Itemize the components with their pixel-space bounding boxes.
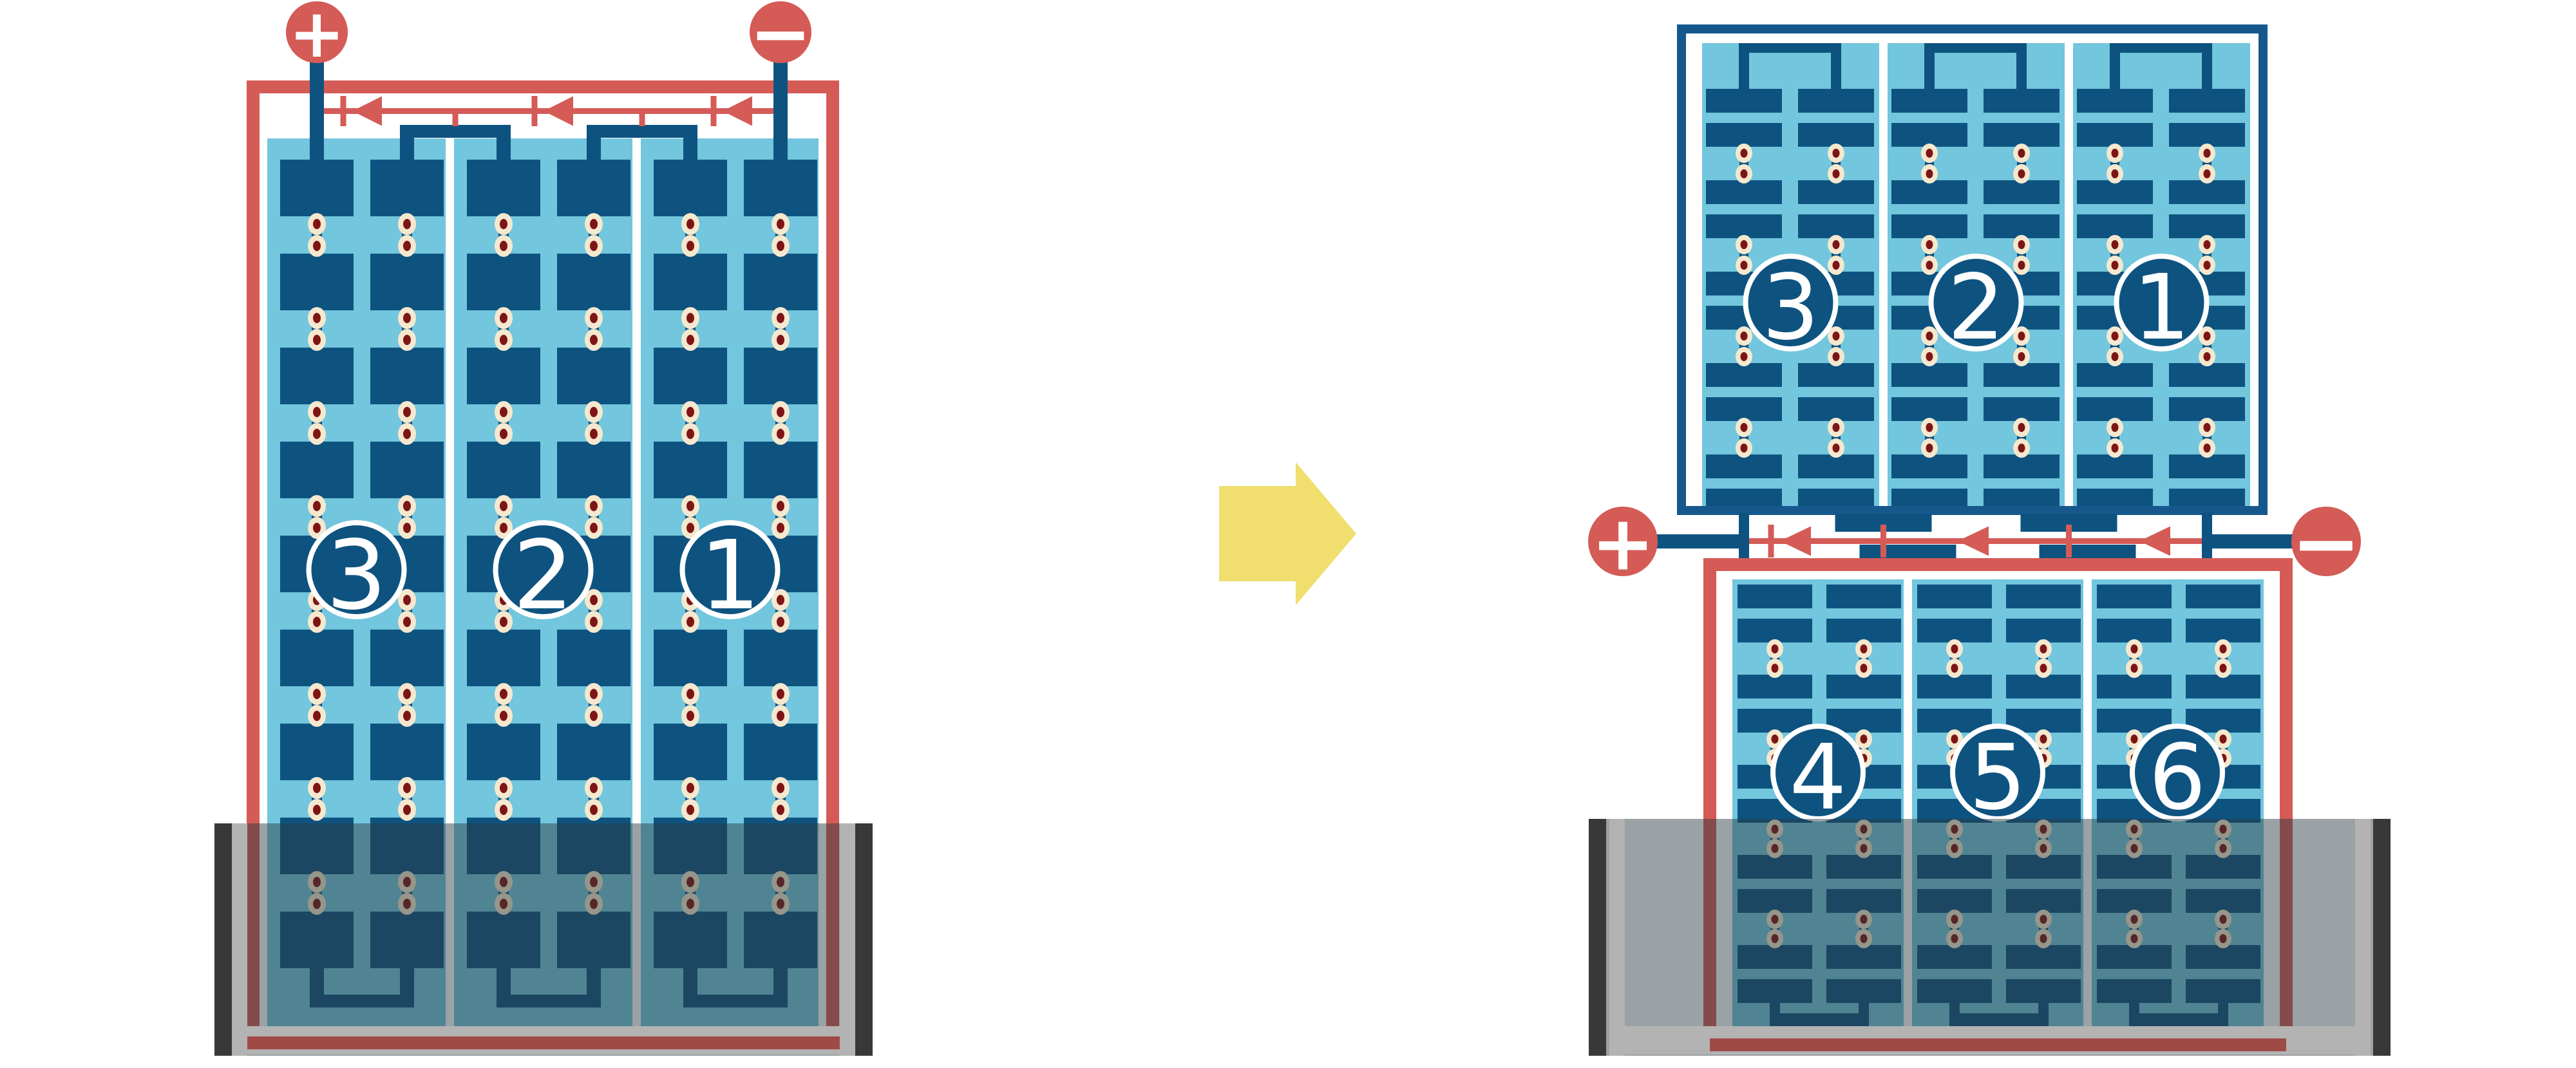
plate-cell bbox=[1798, 214, 1874, 238]
plate-cell bbox=[1798, 180, 1874, 204]
rivet-dot-core bbox=[2018, 332, 2025, 341]
plate-cell bbox=[1984, 180, 2060, 204]
rivet-dot-core bbox=[403, 805, 411, 815]
plate-cell bbox=[1706, 180, 1782, 204]
rivet-dot-core bbox=[313, 241, 321, 251]
cell-number-label: 3 bbox=[1762, 256, 1819, 361]
plate-cell bbox=[2169, 180, 2245, 204]
rivet-dot-core bbox=[1861, 664, 1868, 673]
plate-cell bbox=[1984, 363, 2060, 387]
plate-cell bbox=[2186, 675, 2260, 698]
case-rim bbox=[232, 823, 247, 1056]
plate-cell bbox=[1738, 585, 1812, 608]
rivet-dot-core bbox=[1833, 240, 1840, 249]
rivet-dot-core bbox=[313, 407, 321, 417]
interconnect-leg bbox=[1739, 512, 1749, 560]
plate-cell bbox=[654, 348, 727, 404]
case-wall bbox=[855, 823, 873, 1056]
rivet-dot-core bbox=[313, 219, 321, 229]
cell-divider bbox=[2065, 43, 2073, 506]
rivet-dot-core bbox=[403, 429, 411, 439]
plate-cell bbox=[744, 442, 817, 498]
rivet-dot-core bbox=[1833, 169, 1840, 178]
rivet-dot-core bbox=[590, 219, 598, 229]
plate-cell bbox=[1891, 123, 1967, 147]
rivet-dot-core bbox=[2112, 423, 2119, 432]
rivet-dot-core bbox=[500, 313, 507, 323]
positive-terminal-symbol: + bbox=[1591, 498, 1655, 587]
rivet-dot-core bbox=[313, 429, 321, 439]
case-border-through bbox=[1710, 1038, 2286, 1051]
rivet-dot-core bbox=[2112, 261, 2119, 270]
rivet-dot-core bbox=[1861, 644, 1868, 653]
rivet-dot-core bbox=[2204, 352, 2211, 361]
rivet-dot-core bbox=[777, 783, 784, 793]
rivet-dot-core bbox=[1833, 423, 1840, 432]
rivet-dot-core bbox=[687, 805, 694, 815]
rivet-dot-core bbox=[403, 711, 411, 721]
plate-cell bbox=[744, 630, 817, 686]
rivet-dot-core bbox=[2112, 444, 2119, 453]
rivet-dot-core bbox=[1926, 169, 1933, 178]
negative-bus-bar bbox=[2211, 534, 2295, 548]
cell-bridge-top bbox=[587, 125, 697, 138]
rivet-dot-core bbox=[1833, 332, 1840, 341]
plate-cell bbox=[2169, 214, 2245, 238]
plate-cell bbox=[2006, 619, 2081, 642]
rivet-dot-core bbox=[777, 805, 784, 815]
rivet-dot-core bbox=[403, 617, 411, 627]
plate-cell bbox=[2077, 89, 2153, 113]
rivet-dot-core bbox=[1926, 149, 1933, 158]
rivet-dot-core bbox=[590, 805, 598, 815]
rivet-dot-core bbox=[403, 219, 411, 229]
rivet-dot-core bbox=[313, 805, 321, 815]
current-tick bbox=[1880, 525, 1886, 557]
rivet-dot-core bbox=[2112, 352, 2119, 361]
rivet-dot-core bbox=[590, 689, 598, 699]
plate-cell bbox=[654, 254, 727, 310]
plate-cell bbox=[1984, 454, 2060, 478]
rivet-dot-core bbox=[2040, 644, 2047, 653]
rivet-dot-core bbox=[687, 501, 694, 511]
plate-cell bbox=[2097, 619, 2172, 642]
rivet-dot-core bbox=[1741, 169, 1748, 178]
rivet-dot-core bbox=[687, 783, 694, 793]
rivet-dot-core bbox=[313, 313, 321, 323]
rivet-dot-core bbox=[1741, 332, 1748, 341]
plate-cell bbox=[280, 724, 354, 780]
rivet-dot-core bbox=[1741, 423, 1748, 432]
rivet-dot-core bbox=[313, 335, 321, 345]
plate-cell bbox=[654, 442, 727, 498]
plate-cell bbox=[2186, 585, 2260, 608]
plate-cell bbox=[2077, 397, 2153, 421]
rivet-dot-core bbox=[2040, 664, 2047, 673]
rivet-dot-core bbox=[687, 219, 694, 229]
plate-cell bbox=[654, 630, 727, 686]
rivet-dot-core bbox=[403, 407, 411, 417]
rivet-dot-core bbox=[590, 617, 598, 627]
plate-cell bbox=[1826, 675, 1901, 698]
rivet-dot-core bbox=[1772, 735, 1779, 744]
rivet-dot-core bbox=[313, 617, 321, 627]
rivet-dot-core bbox=[2018, 149, 2025, 158]
rivet-dot-core bbox=[777, 407, 784, 417]
rivet-dot-core bbox=[777, 219, 784, 229]
rivet-dot-core bbox=[687, 523, 694, 533]
case-rim bbox=[840, 823, 855, 1056]
rivet-dot-core bbox=[777, 595, 784, 605]
cell-bridge-leg bbox=[1739, 52, 1749, 91]
rivet-dot-core bbox=[777, 241, 784, 251]
plate-cell bbox=[2169, 397, 2245, 421]
rivet-dot-core bbox=[313, 501, 321, 511]
rivet-dot-core bbox=[500, 805, 507, 815]
plate-cell bbox=[1798, 89, 1874, 113]
rivet-dot-core bbox=[687, 241, 694, 251]
plate-cell bbox=[2169, 123, 2245, 147]
rivet-dot-core bbox=[403, 595, 411, 605]
case-rim bbox=[2355, 819, 2371, 1056]
plate-cell bbox=[370, 724, 444, 780]
rivet-dot-core bbox=[777, 689, 784, 699]
rivet-dot-core bbox=[1951, 644, 1958, 653]
plate-cell bbox=[1891, 397, 1967, 421]
negative-terminal-symbol: − bbox=[2291, 494, 2362, 592]
case-shade bbox=[214, 823, 873, 1056]
rivet-dot-core bbox=[590, 335, 598, 345]
rivet-dot-core bbox=[1926, 352, 1933, 361]
cell-number-label: 3 bbox=[326, 520, 386, 631]
plate-cell bbox=[557, 348, 630, 404]
rivet-dot-core bbox=[687, 335, 694, 345]
cell-number-label: 2 bbox=[513, 520, 573, 631]
plate-cell bbox=[467, 254, 540, 310]
rivet-dot-core bbox=[687, 689, 694, 699]
plate-cell bbox=[467, 724, 540, 780]
plate-cell bbox=[467, 160, 540, 216]
plate-cell bbox=[557, 254, 630, 310]
plate-cell bbox=[2077, 363, 2153, 387]
cell-bridge-top bbox=[1924, 42, 2027, 53]
plate-cell bbox=[1984, 89, 2060, 113]
rivet-dot-core bbox=[590, 429, 598, 439]
cell-bridge-top bbox=[1739, 42, 1841, 53]
plate-cell bbox=[557, 724, 630, 780]
rivet-dot-core bbox=[403, 501, 411, 511]
rivet-dot-core bbox=[1833, 444, 1840, 453]
cell-number-label: 4 bbox=[1789, 726, 1846, 830]
cell-bridge-leg bbox=[2202, 52, 2212, 91]
battery-case-overlay-right bbox=[1589, 819, 2391, 1056]
plate-cell bbox=[2077, 214, 2153, 238]
rivet-dot-core bbox=[403, 335, 411, 345]
plate-cell bbox=[370, 254, 444, 310]
plate-cell bbox=[1798, 397, 1874, 421]
current-stub bbox=[639, 114, 645, 126]
plate-cell bbox=[1706, 397, 1782, 421]
cell-bridge-leg bbox=[683, 137, 697, 162]
plate-cell bbox=[1798, 363, 1874, 387]
rivet-dot-core bbox=[2112, 169, 2119, 178]
plate-cell bbox=[1706, 454, 1782, 478]
plate-cell bbox=[744, 724, 817, 780]
cell-bridge-leg bbox=[587, 137, 601, 162]
case-border-through bbox=[247, 1036, 840, 1049]
rivet-dot-core bbox=[500, 219, 507, 229]
rivet-dot-core bbox=[403, 783, 411, 793]
rivet-dot-core bbox=[1926, 423, 1933, 432]
diagram-canvas: +−321321456+− bbox=[0, 0, 2576, 1068]
current-tick bbox=[711, 96, 717, 126]
rivet-dot-core bbox=[500, 689, 507, 699]
rivet-dot-core bbox=[2220, 735, 2227, 744]
rivet-dot-core bbox=[500, 241, 507, 251]
rivet-dot-core bbox=[2112, 240, 2119, 249]
plate-cell bbox=[2077, 123, 2153, 147]
rivet-dot-core bbox=[500, 783, 507, 793]
rivet-dot-core bbox=[1951, 664, 1958, 673]
rivet-dot-core bbox=[2204, 332, 2211, 341]
rivet-dot-core bbox=[1833, 261, 1840, 270]
rivet-dot-core bbox=[1741, 444, 1748, 453]
rivet-dot-core bbox=[1741, 352, 1748, 361]
rivet-dot-core bbox=[500, 335, 507, 345]
current-tick bbox=[1768, 525, 1774, 557]
plate-cell bbox=[2169, 89, 2245, 113]
rivet-dot-core bbox=[403, 241, 411, 251]
rivet-dot-core bbox=[1772, 644, 1779, 653]
plate-cell bbox=[2186, 619, 2260, 642]
rivet-dot-core bbox=[687, 313, 694, 323]
plate-cell bbox=[2169, 454, 2245, 478]
rivet-dot-core bbox=[2018, 352, 2025, 361]
rivet-dot-core bbox=[403, 689, 411, 699]
case-wall bbox=[2373, 819, 2391, 1056]
rivet-dot-core bbox=[590, 241, 598, 251]
rivet-dot-core bbox=[313, 711, 321, 721]
cell-bridge-leg bbox=[400, 137, 414, 162]
case-shade bbox=[1589, 819, 2391, 1056]
plate-cell bbox=[1706, 89, 1782, 113]
plate-cell bbox=[467, 442, 540, 498]
plate-cell bbox=[2006, 675, 2081, 698]
plate-cell bbox=[1984, 397, 2060, 421]
plate-cell bbox=[1826, 619, 1901, 642]
plate-cell bbox=[2077, 454, 2153, 478]
plate-cell bbox=[280, 348, 354, 404]
battery-rewiring-diagram: +−321321456+− bbox=[0, 0, 2576, 1068]
rivet-dot-core bbox=[2204, 423, 2211, 432]
rivet-dot-core bbox=[777, 313, 784, 323]
rivet-dot-core bbox=[1861, 735, 1868, 744]
rivet-dot-core bbox=[2204, 149, 2211, 158]
rivet-dot-core bbox=[777, 429, 784, 439]
plate-cell bbox=[467, 630, 540, 686]
interconnect-leg bbox=[2202, 512, 2212, 560]
plate-cell bbox=[2097, 675, 2172, 698]
rivet-dot-core bbox=[777, 711, 784, 721]
rivet-dot-core bbox=[687, 407, 694, 417]
plate-cell bbox=[1706, 363, 1782, 387]
rivet-dot-core bbox=[2112, 149, 2119, 158]
plate-cell bbox=[1984, 123, 2060, 147]
rivet-dot-core bbox=[2018, 444, 2025, 453]
rivet-dot-core bbox=[2131, 735, 2138, 744]
rivet-dot-core bbox=[2131, 644, 2138, 653]
plate-cell bbox=[370, 160, 444, 216]
negative-terminal-symbol: − bbox=[749, 0, 811, 77]
rivet-dot-core bbox=[313, 523, 321, 533]
plate-cell bbox=[1891, 89, 1967, 113]
current-tick bbox=[532, 96, 538, 126]
cell-bridge-top bbox=[400, 125, 511, 138]
plate-cell bbox=[1706, 214, 1782, 238]
rivet-dot-core bbox=[2112, 332, 2119, 341]
cell-bridge-top bbox=[2110, 42, 2212, 53]
rivet-dot-core bbox=[2018, 240, 2025, 249]
rivet-dot-core bbox=[777, 523, 784, 533]
plate-cell bbox=[280, 630, 354, 686]
rivet-dot-core bbox=[1951, 735, 1958, 744]
plate-cell bbox=[1891, 454, 1967, 478]
rivet-dot-core bbox=[1833, 149, 1840, 158]
rivet-dot-core bbox=[1741, 240, 1748, 249]
rivet-dot-core bbox=[2018, 169, 2025, 178]
battery-case-overlay-left bbox=[214, 823, 873, 1056]
current-stub bbox=[453, 114, 459, 126]
plate-cell bbox=[2077, 180, 2153, 204]
rivet-dot-core bbox=[2204, 169, 2211, 178]
rivet-dot-core bbox=[500, 617, 507, 627]
rivet-dot-core bbox=[2204, 240, 2211, 249]
rivet-dot-core bbox=[687, 429, 694, 439]
rivet-dot-core bbox=[1772, 664, 1779, 673]
rivet-dot-core bbox=[1926, 332, 1933, 341]
plate-cell bbox=[2006, 585, 2081, 608]
rivet-dot-core bbox=[403, 313, 411, 323]
plate-cell bbox=[1826, 585, 1901, 608]
plate-cell bbox=[467, 348, 540, 404]
rivet-dot-core bbox=[777, 617, 784, 627]
cell-bridge-leg bbox=[2110, 52, 2120, 91]
rivet-dot-core bbox=[2131, 664, 2138, 673]
rivet-dot-core bbox=[590, 595, 598, 605]
rivet-dot-core bbox=[500, 429, 507, 439]
rivet-dot-core bbox=[590, 523, 598, 533]
plate-cell bbox=[557, 630, 630, 686]
plate-cell bbox=[1891, 214, 1967, 238]
positive-terminal-symbol: + bbox=[289, 0, 345, 73]
rivet-dot-core bbox=[777, 501, 784, 511]
cell-number-label: 6 bbox=[2148, 726, 2206, 830]
case-wall bbox=[1589, 819, 1606, 1056]
rivet-dot-core bbox=[403, 523, 411, 533]
rivet-dot-core bbox=[2040, 735, 2047, 744]
cell-divider bbox=[1879, 43, 1888, 506]
rivet-dot-core bbox=[2220, 664, 2227, 673]
plate-cell bbox=[1738, 619, 1812, 642]
plate-cell bbox=[1738, 675, 1812, 698]
rivet-dot-core bbox=[590, 313, 598, 323]
rivet-dot-core bbox=[1833, 352, 1840, 361]
positive-bus-bar bbox=[1656, 534, 1740, 548]
rivet-dot-core bbox=[590, 407, 598, 417]
rivet-dot-core bbox=[500, 501, 507, 511]
rivet-dot-core bbox=[2220, 644, 2227, 653]
rivet-dot-core bbox=[777, 335, 784, 345]
rivet-dot-core bbox=[687, 711, 694, 721]
plate-cell bbox=[654, 724, 727, 780]
rivet-dot-core bbox=[500, 711, 507, 721]
rivet-dot-core bbox=[590, 711, 598, 721]
plate-cell bbox=[1798, 454, 1874, 478]
case-wall bbox=[214, 823, 232, 1056]
rivet-dot-core bbox=[500, 523, 507, 533]
plate-cell bbox=[1917, 585, 1992, 608]
plate-cell bbox=[370, 442, 444, 498]
current-tick bbox=[341, 96, 346, 126]
plate-cell bbox=[370, 630, 444, 686]
plate-cell bbox=[557, 160, 630, 216]
cell-bridge-leg bbox=[1831, 52, 1841, 91]
terminal-wire-negative bbox=[773, 57, 788, 194]
plate-cell bbox=[744, 254, 817, 310]
right-battery-top-unit: 321 bbox=[1681, 29, 2263, 512]
terminal-wire-positive bbox=[310, 57, 324, 194]
plate-cell bbox=[1798, 123, 1874, 147]
rivet-dot-core bbox=[590, 783, 598, 793]
cell-bridge-leg bbox=[1924, 52, 1935, 91]
rivet-dot-core bbox=[1926, 240, 1933, 249]
rivet-dot-core bbox=[687, 617, 694, 627]
rivet-dot-core bbox=[1926, 261, 1933, 270]
plate-cell bbox=[1891, 180, 1967, 204]
plate-cell bbox=[744, 348, 817, 404]
cell-number-label: 1 bbox=[699, 520, 760, 631]
plate-cell bbox=[370, 348, 444, 404]
rivet-dot-core bbox=[590, 501, 598, 511]
cell-number-label: 1 bbox=[2133, 256, 2190, 361]
plate-cell bbox=[654, 160, 727, 216]
rivet-dot-core bbox=[500, 407, 507, 417]
rivet-dot-core bbox=[313, 689, 321, 699]
plate-cell bbox=[280, 442, 354, 498]
current-tick bbox=[2066, 525, 2072, 557]
rivet-dot-core bbox=[2204, 444, 2211, 453]
cell-bridge-leg bbox=[497, 137, 511, 162]
plate-cell bbox=[1891, 363, 1967, 387]
plate-cell bbox=[2169, 363, 2245, 387]
plate-cell bbox=[1706, 123, 1782, 147]
rivet-dot-core bbox=[1926, 444, 1933, 453]
plate-cell bbox=[1917, 619, 1992, 642]
cell-bridge-leg bbox=[2016, 52, 2027, 91]
cell-number-label: 2 bbox=[1947, 256, 2005, 361]
plate-cell bbox=[1984, 214, 2060, 238]
case-rim bbox=[1609, 819, 1625, 1056]
cell-number-label: 5 bbox=[1969, 726, 2026, 830]
plate-cell bbox=[557, 442, 630, 498]
plate-cell bbox=[2097, 585, 2172, 608]
rivet-dot-core bbox=[2018, 261, 2025, 270]
rivet-dot-core bbox=[313, 783, 321, 793]
rivet-dot-core bbox=[2018, 423, 2025, 432]
rivet-dot-core bbox=[1741, 261, 1748, 270]
rivet-dot-core bbox=[1741, 149, 1748, 158]
plate-cell bbox=[280, 254, 354, 310]
